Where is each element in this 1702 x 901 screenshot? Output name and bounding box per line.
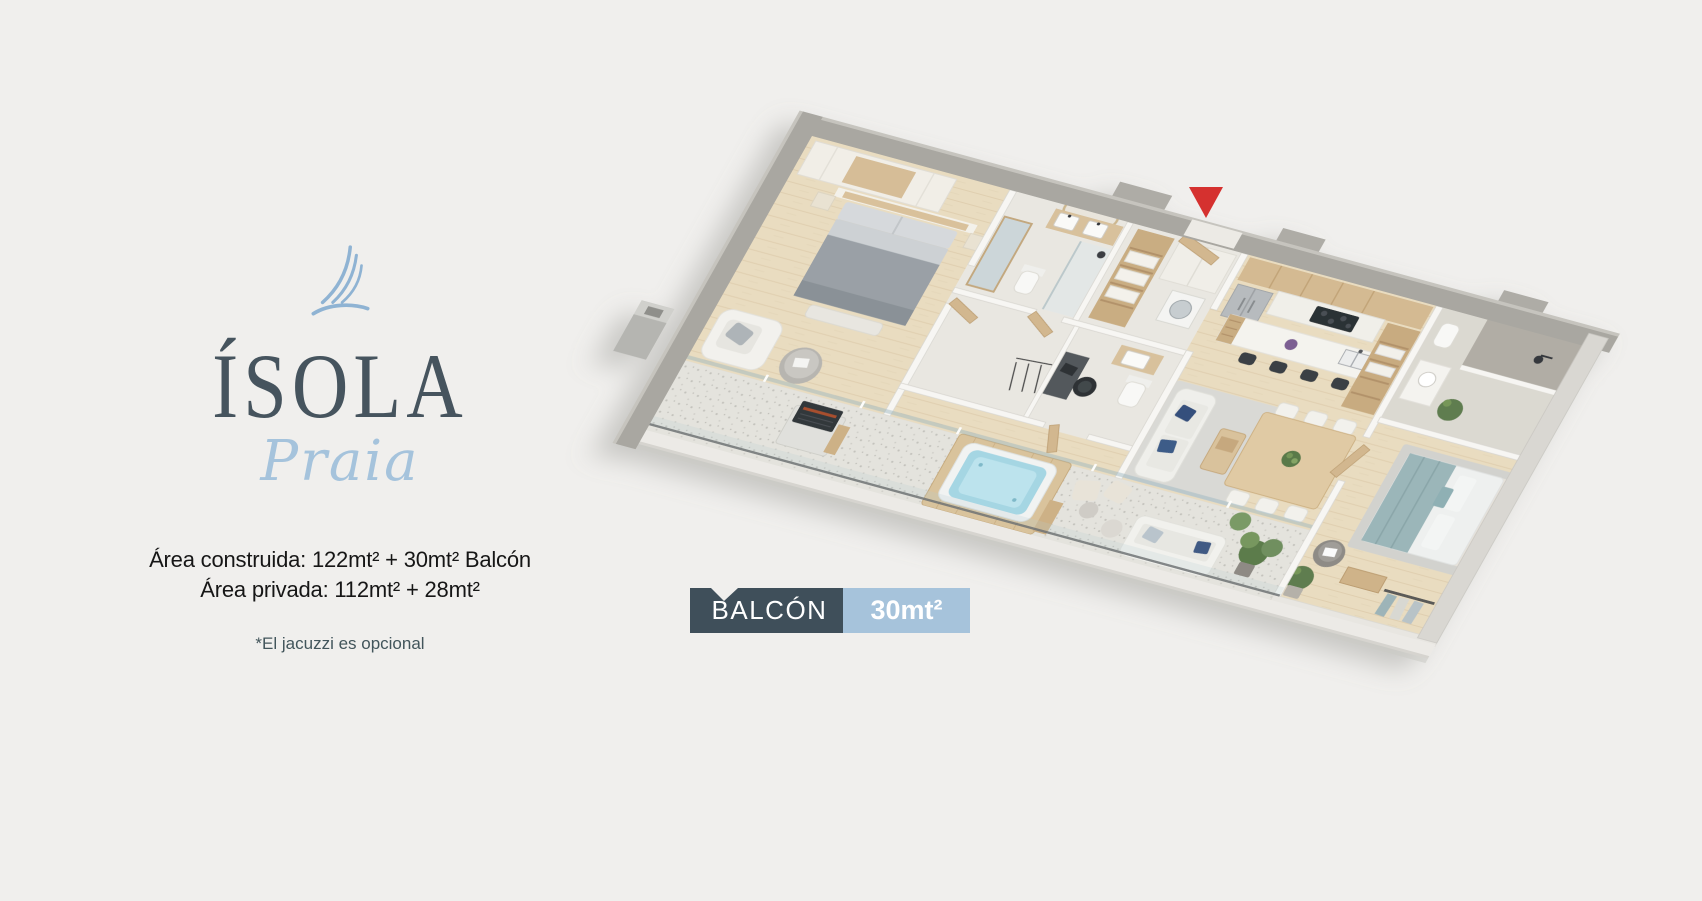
balcony-chair	[1071, 480, 1102, 501]
floor-plan-illustration	[0, 0, 1702, 901]
entrance-marker-icon	[1189, 187, 1223, 218]
page: ÍSOLA Praia Área construida: 122mt² + 30…	[0, 0, 1702, 901]
